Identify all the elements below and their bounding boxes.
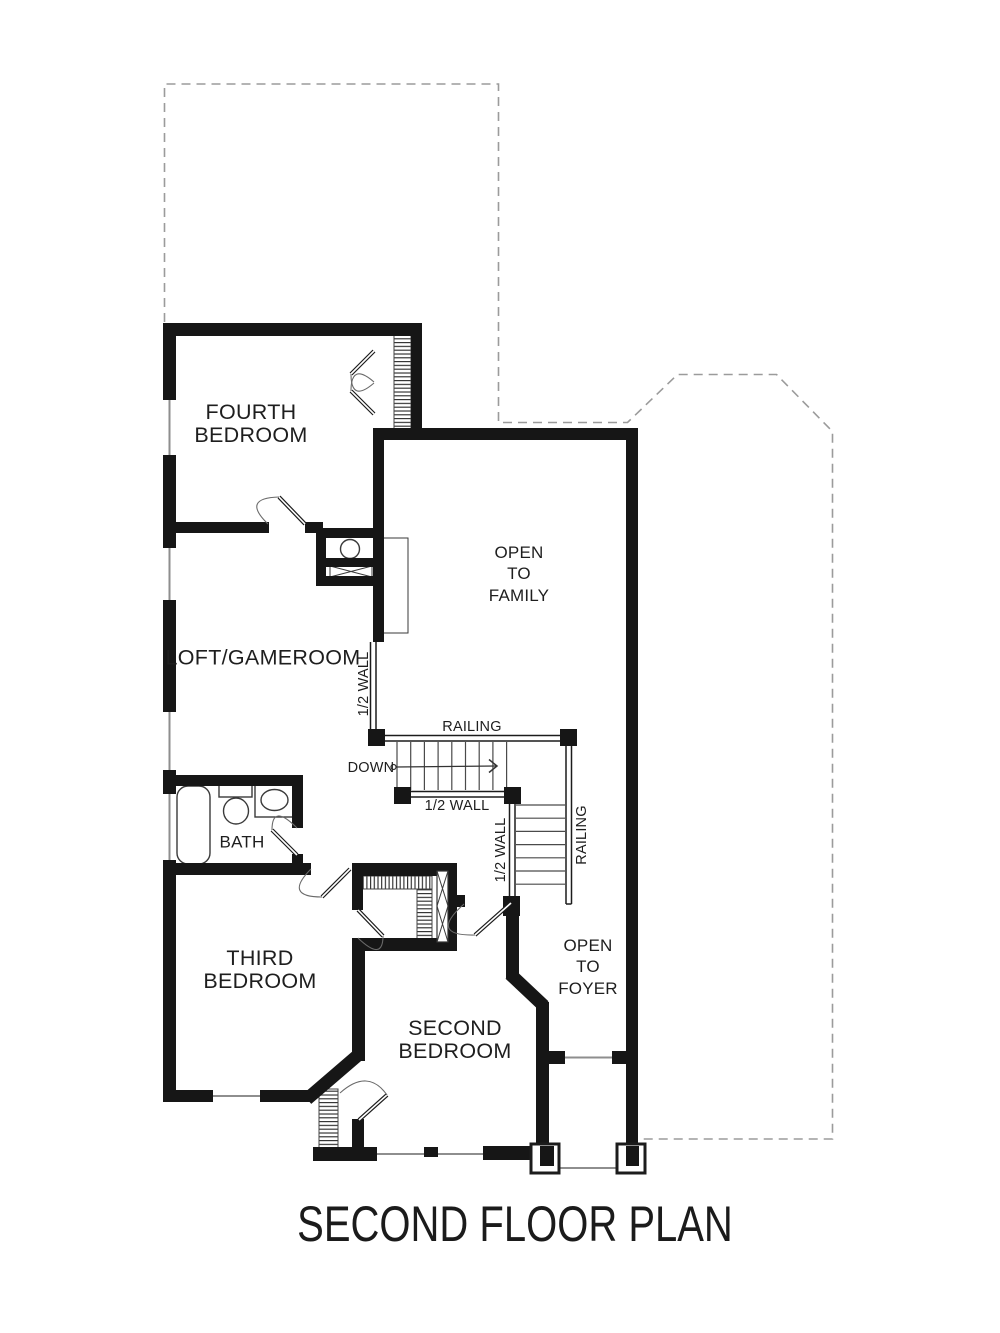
label-third-bedroom: THIRD BEDROOM	[203, 947, 316, 993]
label-loft-gameroom: LOFT/GAMEROOM	[165, 646, 360, 669]
railing-post	[394, 787, 411, 804]
floor-plan-drawing	[0, 0, 1000, 1333]
label-open-to-foyer: OPEN TO FOYER	[558, 935, 618, 999]
floor-plan-page: FOURTH BEDROOM LOFT/GAMEROOM OPEN TO FAM…	[0, 0, 1000, 1333]
label-half-wall-bottom: 1/2 WALL	[425, 798, 490, 814]
label-fourth-bedroom: FOURTH BEDROOM	[194, 401, 307, 447]
railing-post	[368, 729, 385, 746]
toilet-bowl	[224, 798, 249, 824]
label-half-wall-loft: 1/2 WALL	[356, 652, 372, 717]
bifold-door	[437, 871, 448, 942]
railing-post	[560, 729, 577, 746]
label-half-wall-side: 1/2 WALL	[493, 818, 509, 883]
bathtub	[177, 786, 210, 864]
label-second-bedroom: SECOND BEDROOM	[398, 1017, 511, 1063]
window-mullion	[424, 1147, 438, 1157]
plan-title-text: SECOND FLOOR PLAN	[297, 1195, 733, 1253]
label-down: DOWN	[348, 760, 395, 776]
label-open-to-family: OPEN TO FAMILY	[489, 542, 549, 606]
nook-sink	[341, 540, 360, 559]
label-bath: BATH	[220, 831, 265, 852]
ledge	[382, 538, 408, 633]
railing-post	[504, 787, 521, 804]
label-railing-right: RAILING	[574, 805, 590, 864]
down-arrow	[391, 760, 497, 773]
sink	[261, 790, 288, 811]
label-railing-top: RAILING	[442, 719, 501, 735]
plan-title: SECOND FLOOR PLAN	[243, 1195, 788, 1253]
